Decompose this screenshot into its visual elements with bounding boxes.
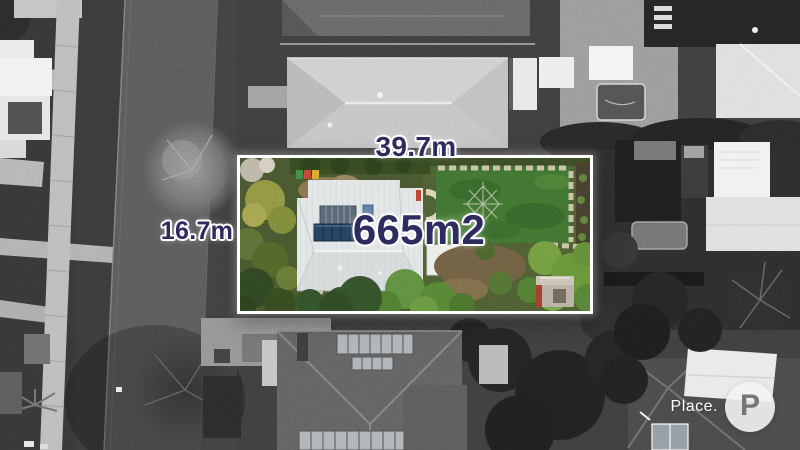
place-logo-monogram-letter: P — [740, 391, 760, 421]
place-logo: Place. P — [620, 382, 775, 432]
place-logo-monogram-icon: P — [725, 382, 775, 432]
property-boundary — [237, 155, 593, 314]
place-logo-text: Place. — [671, 398, 718, 416]
aerial-property-photo: 39.7m 16.7m 665m2 Place. P — [0, 0, 800, 450]
property-lot-color — [240, 158, 590, 311]
